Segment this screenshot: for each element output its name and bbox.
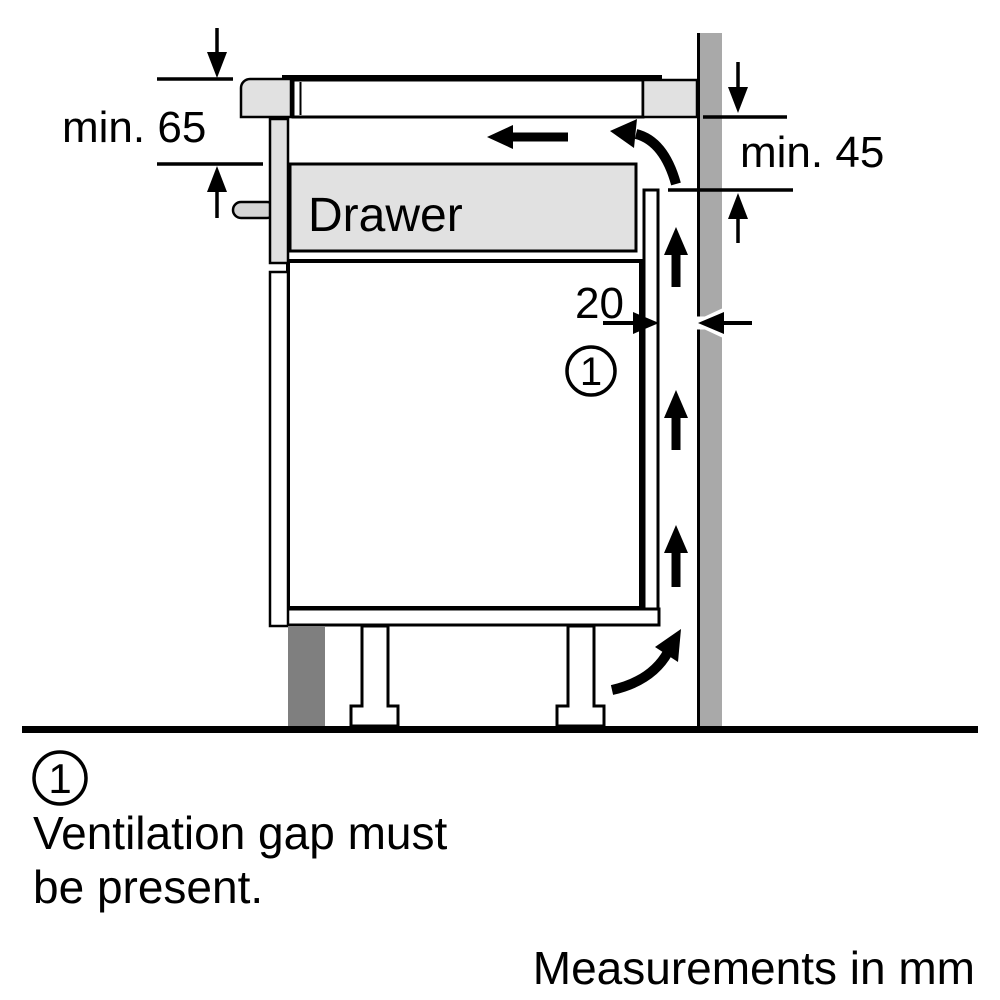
plinth (288, 626, 325, 726)
dim65-label: min. 65 (62, 103, 206, 152)
cabinet: Drawer (233, 119, 659, 726)
cabinet-leg-rear (557, 626, 604, 726)
airflow-up-arrow-icon (664, 390, 688, 418)
worktop (293, 80, 643, 117)
hob-installation-diagram-page: Drawer (0, 0, 1000, 1000)
footnote-line2: be present. (33, 861, 263, 913)
footnote-line1: Ventilation gap must (33, 807, 447, 859)
wall (699, 33, 723, 727)
units-note: Measurements in mm (533, 942, 975, 994)
airflow-top-curve-arrow-icon (610, 119, 637, 148)
drawer-front-panel (270, 119, 288, 263)
footnote-number: 1 (48, 755, 71, 802)
installation-diagram: Drawer (0, 0, 1000, 1000)
hob-front-edge (241, 79, 291, 117)
dim65-arrow-down-icon (207, 52, 227, 78)
worktop-assembly (241, 75, 697, 117)
airflow-up-arrow-icon (664, 227, 688, 255)
airflow-up-arrow-1 (664, 227, 688, 287)
dimension-gap-20: 20 (575, 279, 754, 336)
airflow-bottom-curve (612, 652, 668, 690)
wall-body (700, 33, 722, 727)
cabinet-bottom-board (287, 609, 659, 625)
dimension-min-65: min. 65 (62, 28, 263, 218)
dim65-arrow-up-icon (207, 166, 227, 192)
dim45-arrow-up-icon (728, 193, 748, 219)
floor-line (22, 726, 978, 733)
dim45-arrow-down-icon (728, 87, 748, 113)
cabinet-rear-panel (644, 190, 658, 623)
dim45-label: min. 45 (740, 128, 884, 177)
airflow-up-arrow-icon (664, 525, 688, 553)
airflow-top-curve (636, 134, 676, 184)
door-front-panel (270, 272, 288, 626)
callout-number: 1 (580, 350, 602, 394)
worktop-rear-section (643, 80, 697, 117)
drawer-handle (233, 202, 275, 218)
drawer-label: Drawer (308, 189, 463, 242)
airflow-left-arrow-icon (487, 125, 513, 149)
airflow-up-arrow-2 (664, 390, 688, 450)
footnote: 1 Ventilation gap must be present. (33, 752, 447, 913)
callout-1-marker: 1 (567, 347, 615, 395)
cabinet-leg-front (351, 626, 398, 726)
airflow-up-arrow-3 (664, 525, 688, 587)
gap20-label: 20 (575, 279, 624, 328)
